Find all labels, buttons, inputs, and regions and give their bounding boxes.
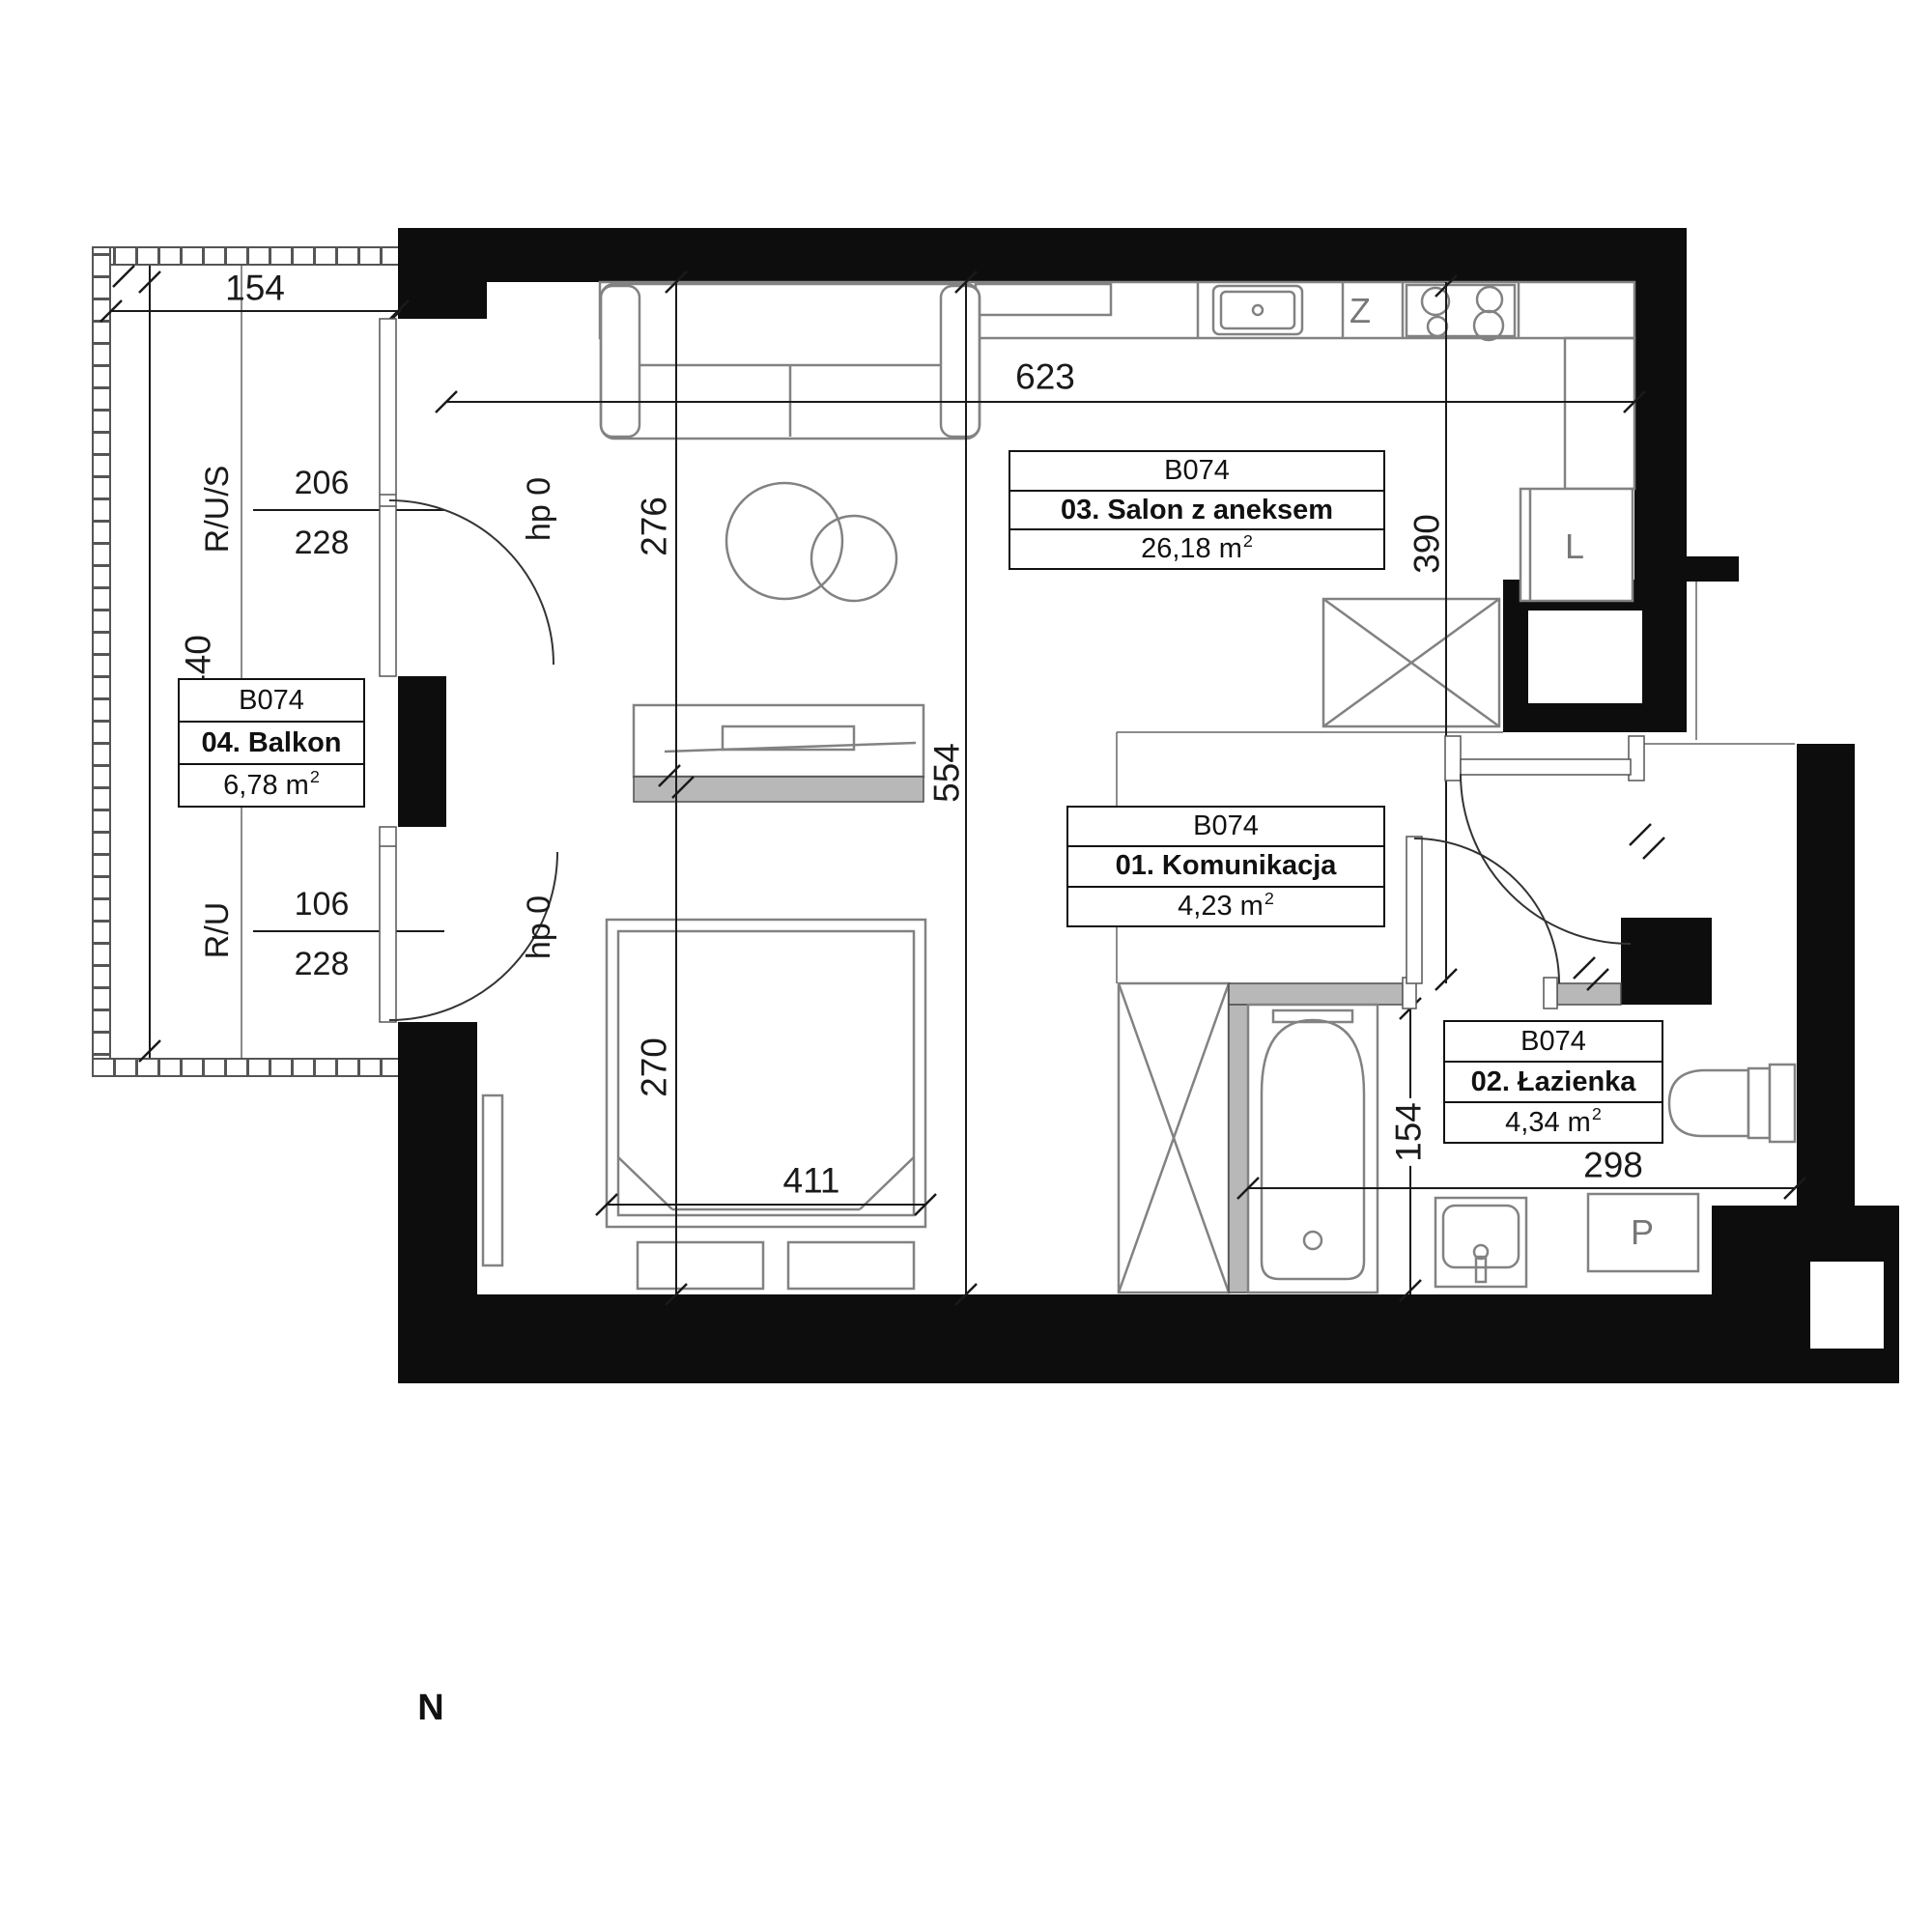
- dim-salon-upper-depth: 276: [637, 497, 672, 556]
- dim-bed-zone-depth: 270: [637, 1037, 672, 1097]
- north-mark: N: [417, 1690, 443, 1726]
- room-label-lazienka: B074 02. Łazienka 4,34 m2: [1443, 1020, 1663, 1144]
- dim-bed-width: 411: [783, 1163, 840, 1199]
- fridge-letter: L: [1565, 529, 1584, 564]
- dim-salon-width: 623: [1015, 359, 1075, 395]
- floor-plan: 154 440 R/U/S 206 228 R/U 106 228 hp 0 h…: [0, 0, 1932, 1932]
- room-name: 02. Łazienka: [1445, 1061, 1662, 1101]
- room-area: 6,78 m2: [180, 763, 363, 806]
- room-label-balkon: B074 04. Balkon 6,78 m2: [178, 678, 365, 808]
- room-area: 26,18 m2: [1010, 528, 1383, 568]
- dim-salon-total-depth: 554: [929, 743, 965, 803]
- dim-kitchen-depth: 390: [1409, 514, 1445, 574]
- room-code: B074: [1068, 808, 1383, 845]
- dim-balcony-width: 154: [225, 270, 285, 306]
- room-area: 4,34 m2: [1445, 1101, 1662, 1142]
- room-code: B074: [1010, 452, 1383, 490]
- dim-bath-width: 298: [1583, 1148, 1643, 1183]
- room-name: 03. Salon z aneksem: [1010, 490, 1383, 529]
- room-code: B074: [180, 680, 363, 721]
- room-area: 4,23 m2: [1068, 886, 1383, 925]
- room-label-salon: B074 03. Salon z aneksem 26,18 m2: [1009, 450, 1385, 570]
- washer-letter: P: [1631, 1215, 1654, 1250]
- text-layer: 154 440 R/U/S 206 228 R/U 106 228 hp 0 h…: [0, 0, 1932, 1932]
- dim-bath-strip: 154: [1389, 1098, 1429, 1166]
- window-height-lower: 228: [295, 948, 350, 980]
- window-height-upper: 228: [295, 526, 350, 559]
- window-label-upper: R/U/S: [201, 466, 234, 554]
- sink-letter: Z: [1350, 294, 1371, 328]
- window-label-lower: R/U: [201, 902, 234, 959]
- window-width-upper: 206: [295, 467, 350, 499]
- window-width-lower: 106: [295, 888, 350, 921]
- room-name: 01. Komunikacja: [1068, 845, 1383, 885]
- room-label-komunikacja: B074 01. Komunikacja 4,23 m2: [1066, 806, 1385, 927]
- room-name: 04. Balkon: [180, 721, 363, 763]
- sill-lower: hp 0: [523, 895, 555, 959]
- sill-upper: hp 0: [523, 477, 555, 541]
- room-code: B074: [1445, 1022, 1662, 1061]
